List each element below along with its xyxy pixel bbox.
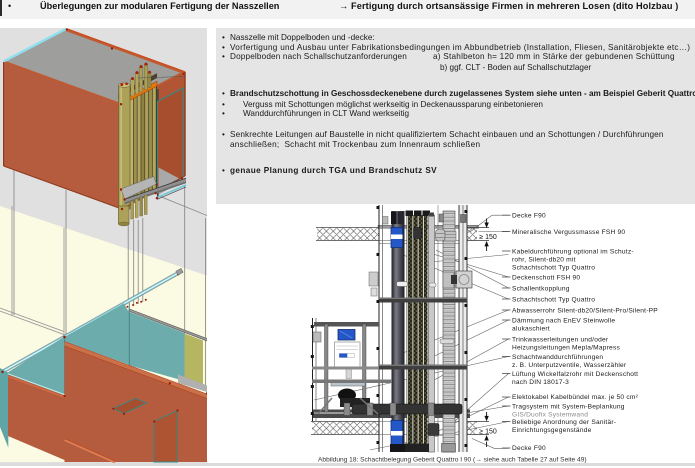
svg-text:Beliebige Anordnung der Sanitä: Beliebige Anordnung der Sanitär-: [512, 419, 616, 426]
svg-text:Schachtschott Typ Quattro: Schachtschott Typ Quattro: [512, 296, 595, 303]
svg-text:Mineralische Vergussmasse FSH: Mineralische Vergussmasse FSH 90: [512, 229, 625, 236]
svg-text:Dämmung nach EnEV Steinwolle: Dämmung nach EnEV Steinwolle: [512, 317, 615, 324]
svg-text:Einrichtungsgegenstände: Einrichtungsgegenstände: [512, 427, 592, 434]
svg-text:≥ 150: ≥ 150: [479, 429, 497, 436]
svg-text:Tragsystem mit System-Beplanku: Tragsystem mit System-Beplankung: [512, 403, 625, 410]
svg-text:Schachtwanddurchführungen: Schachtwanddurchführungen: [512, 354, 603, 361]
svg-text:Decke F90: Decke F90: [512, 213, 546, 220]
svg-text:Elektokabel Kabelbündel max. j: Elektokabel Kabelbündel max. je 50 cm²: [512, 394, 639, 401]
svg-text:Heizungsleitungen Mepla/Mapres: Heizungsleitungen Mepla/Mapress: [512, 344, 620, 351]
svg-text:Schallentkopplung: Schallentkopplung: [512, 285, 570, 292]
svg-text:≥ 150: ≥ 150: [479, 234, 497, 241]
svg-text:Deckenschott FSH 90: Deckenschott FSH 90: [512, 274, 580, 281]
svg-text:alukaschiert: alukaschiert: [512, 325, 550, 332]
svg-text:Decke F90: Decke F90: [512, 445, 546, 452]
svg-text:Lüftung Wickelfalzrohr mit Dec: Lüftung Wickelfalzrohr mit Deckenschott: [512, 371, 638, 378]
svg-text:GIS/Duofix Systemwand: GIS/Duofix Systemwand: [512, 411, 588, 418]
svg-text:z. B. Unterputzventile, Wasser: z. B. Unterputzventile, Wasserzähler: [512, 362, 627, 369]
svg-text:Abwasserrohr Silent-db20/Silen: Abwasserrohr Silent-db20/Silent-Pro/Sile…: [512, 307, 658, 314]
svg-text:rohr, Silent-db20 mit: rohr, Silent-db20 mit: [512, 257, 576, 264]
svg-text:Kabeldurchführung optional im: Kabeldurchführung optional im Schutz-: [512, 249, 634, 256]
svg-text:Schachtschott Typ Quattro: Schachtschott Typ Quattro: [512, 265, 595, 272]
svg-text:Trinkwasserleitungen und/oder: Trinkwasserleitungen und/oder: [512, 336, 609, 343]
svg-text:nach DIN 18017-3: nach DIN 18017-3: [512, 379, 569, 386]
